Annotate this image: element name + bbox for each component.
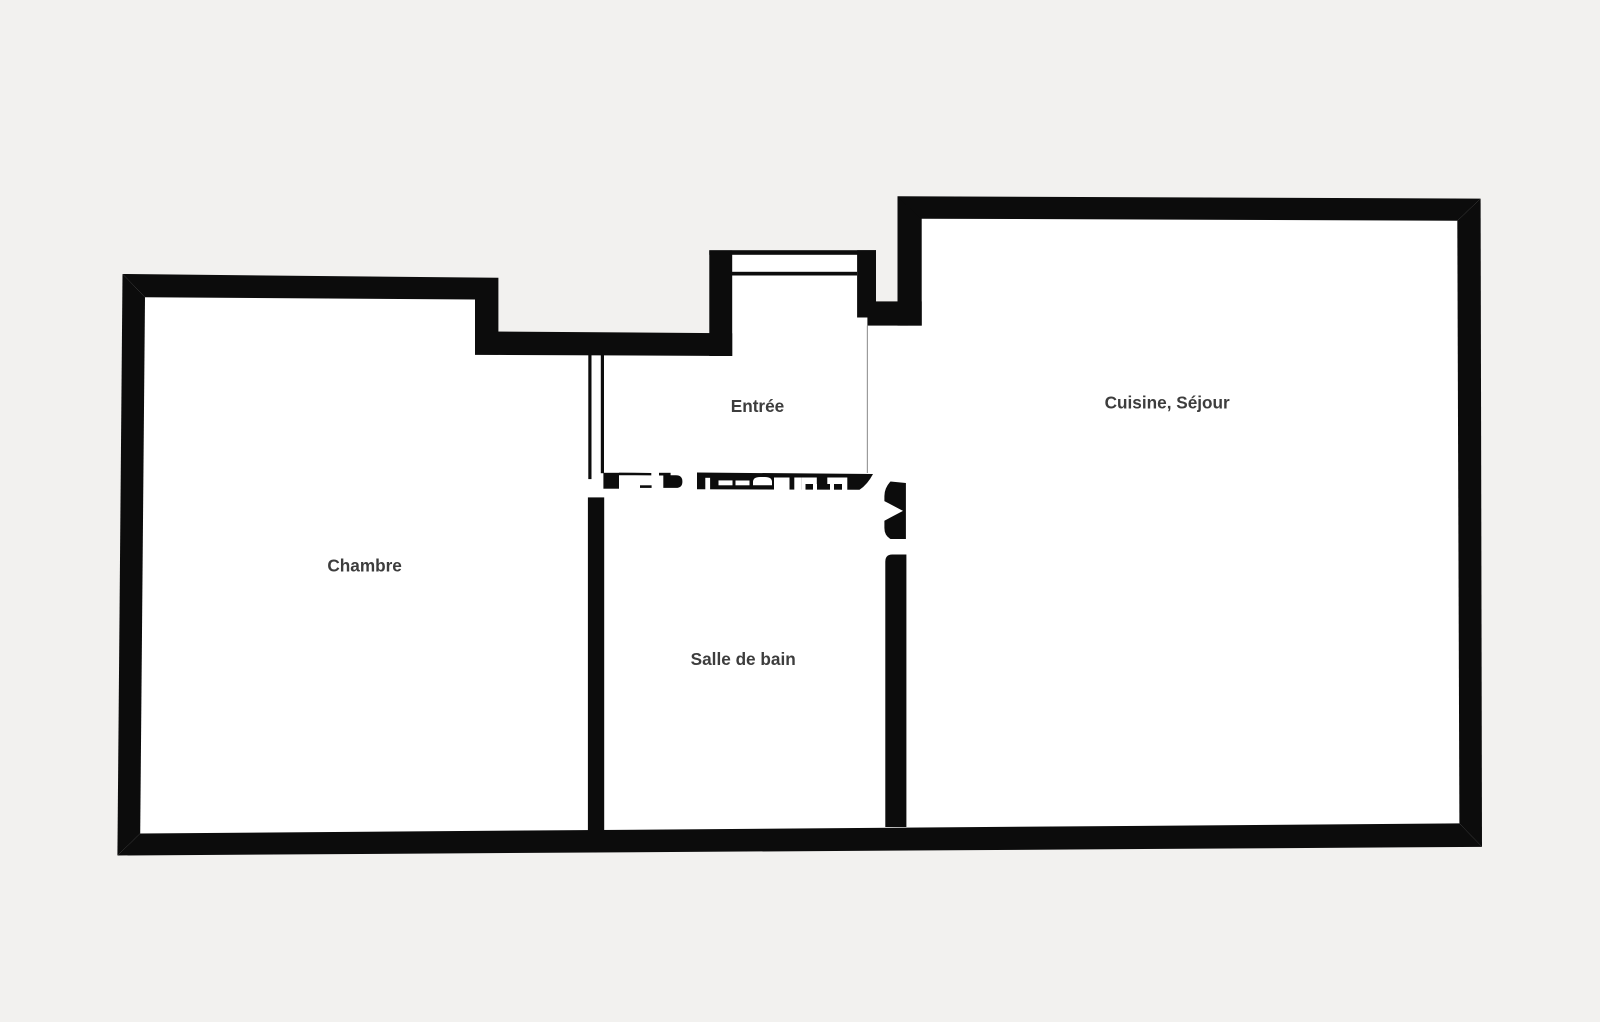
svg-text:Entrée: Entrée	[731, 396, 785, 416]
svg-text:Chambre: Chambre	[327, 556, 402, 576]
svg-text:Cuisine, Séjour: Cuisine, Séjour	[1105, 393, 1230, 413]
svg-text:Salle de bain: Salle de bain	[691, 649, 796, 669]
